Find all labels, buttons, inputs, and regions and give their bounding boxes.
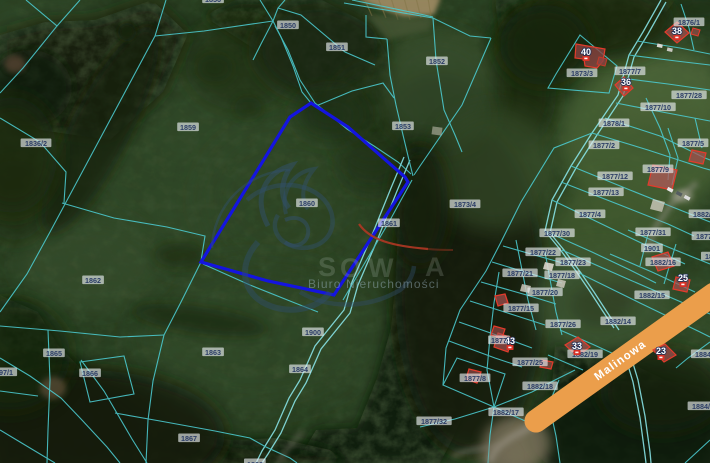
svg-text:23: 23 — [656, 346, 666, 356]
svg-text:1901: 1901 — [644, 244, 660, 253]
svg-text:1882/16: 1882/16 — [650, 258, 676, 267]
svg-text:1877/22: 1877/22 — [530, 248, 556, 257]
svg-text:Biuro Nieruchomości: Biuro Nieruchomości — [308, 277, 440, 291]
svg-text:1884/: 1884/ — [695, 350, 710, 359]
svg-text:33: 33 — [572, 341, 582, 351]
svg-text:1877/13: 1877/13 — [593, 188, 619, 197]
svg-text:1900: 1900 — [305, 328, 321, 337]
svg-text:1859: 1859 — [180, 123, 196, 132]
svg-text:1862: 1862 — [85, 276, 101, 285]
svg-text:1864: 1864 — [292, 365, 308, 374]
svg-text:1878/1: 1878/1 — [603, 119, 625, 128]
svg-text:1877/10: 1877/10 — [645, 103, 671, 112]
svg-text:1877/30: 1877/30 — [544, 229, 570, 238]
svg-text:1866: 1866 — [82, 369, 98, 378]
svg-text:40: 40 — [581, 47, 591, 57]
svg-text:1852: 1852 — [429, 57, 445, 66]
svg-text:1882/15: 1882/15 — [639, 291, 665, 300]
svg-text:1877/32: 1877/32 — [421, 417, 447, 426]
svg-text:897/1: 897/1 — [0, 368, 13, 377]
svg-text:1877/26: 1877/26 — [550, 320, 576, 329]
svg-text:1877/7: 1877/7 — [619, 67, 641, 76]
svg-text:43: 43 — [505, 336, 515, 346]
svg-text:1877/31: 1877/31 — [640, 228, 666, 237]
svg-text:1851: 1851 — [329, 43, 345, 52]
svg-text:1877/23: 1877/23 — [560, 258, 586, 267]
svg-text:1861: 1861 — [381, 219, 397, 228]
svg-text:1873/4: 1873/4 — [454, 200, 476, 209]
svg-text:1863: 1863 — [205, 348, 221, 357]
svg-text:1860: 1860 — [299, 199, 315, 208]
svg-text:1877/2: 1877/2 — [593, 141, 615, 150]
svg-text:36: 36 — [621, 77, 631, 87]
svg-text:1850: 1850 — [280, 21, 296, 30]
svg-text:188: 188 — [705, 252, 710, 261]
svg-text:1877/5: 1877/5 — [682, 139, 704, 148]
svg-text:1853: 1853 — [395, 122, 411, 131]
svg-text:1865: 1865 — [46, 349, 62, 358]
svg-text:1877/4: 1877/4 — [579, 210, 601, 219]
svg-text:1882/2: 1882/2 — [693, 210, 710, 219]
svg-text:1882/17: 1882/17 — [493, 408, 519, 417]
svg-text:1877/12: 1877/12 — [602, 172, 628, 181]
svg-text:1884/1: 1884/1 — [692, 402, 710, 411]
svg-text:1867: 1867 — [181, 434, 197, 443]
svg-text:1882/18: 1882/18 — [527, 382, 553, 391]
svg-text:1877/28: 1877/28 — [676, 91, 702, 100]
svg-text:1877/20: 1877/20 — [532, 288, 558, 297]
svg-text:1877/3: 1877/3 — [696, 232, 710, 241]
svg-text:1877/21: 1877/21 — [507, 269, 533, 278]
svg-text:1873/3: 1873/3 — [571, 69, 593, 78]
svg-text:1877/9: 1877/9 — [647, 165, 669, 174]
svg-text:1877/18: 1877/18 — [549, 271, 575, 280]
svg-text:1877/15: 1877/15 — [508, 304, 534, 313]
svg-text:25: 25 — [678, 273, 688, 283]
svg-text:1856: 1856 — [205, 0, 221, 4]
svg-text:1836/2: 1836/2 — [25, 139, 47, 148]
svg-text:1882/14: 1882/14 — [605, 317, 631, 326]
svg-text:1877/25: 1877/25 — [517, 358, 543, 367]
svg-text:1877/8: 1877/8 — [464, 374, 486, 383]
svg-text:38: 38 — [672, 26, 682, 36]
